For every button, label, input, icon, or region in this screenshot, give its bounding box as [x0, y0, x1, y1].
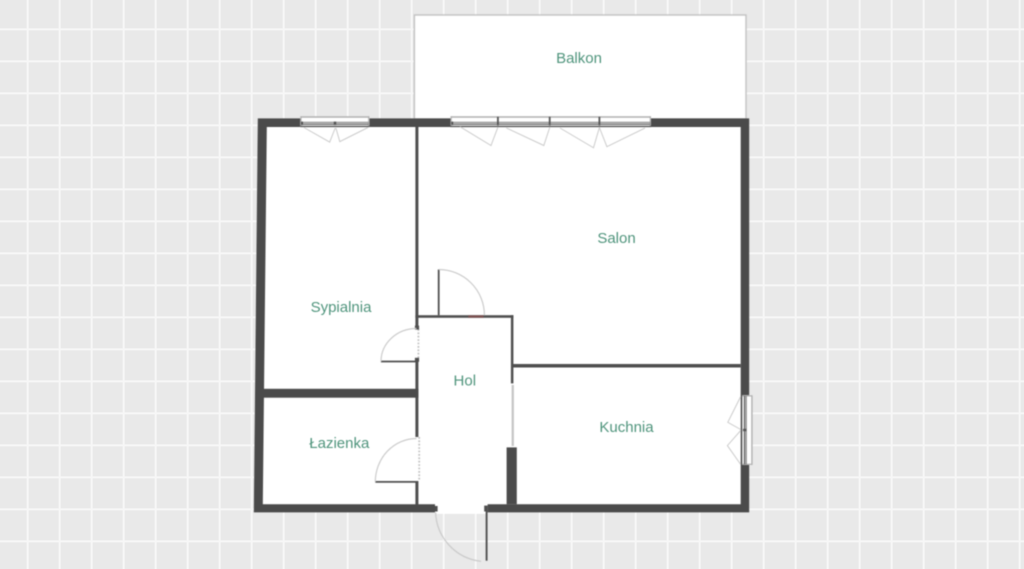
svg-text:Sypialnia: Sypialnia	[311, 299, 373, 316]
svg-text:Balkon: Balkon	[556, 50, 602, 67]
svg-text:Kuchnia: Kuchnia	[599, 419, 654, 436]
svg-text:Łazienka: Łazienka	[309, 435, 370, 452]
svg-text:Hol: Hol	[454, 373, 477, 390]
svg-text:Salon: Salon	[597, 230, 635, 247]
